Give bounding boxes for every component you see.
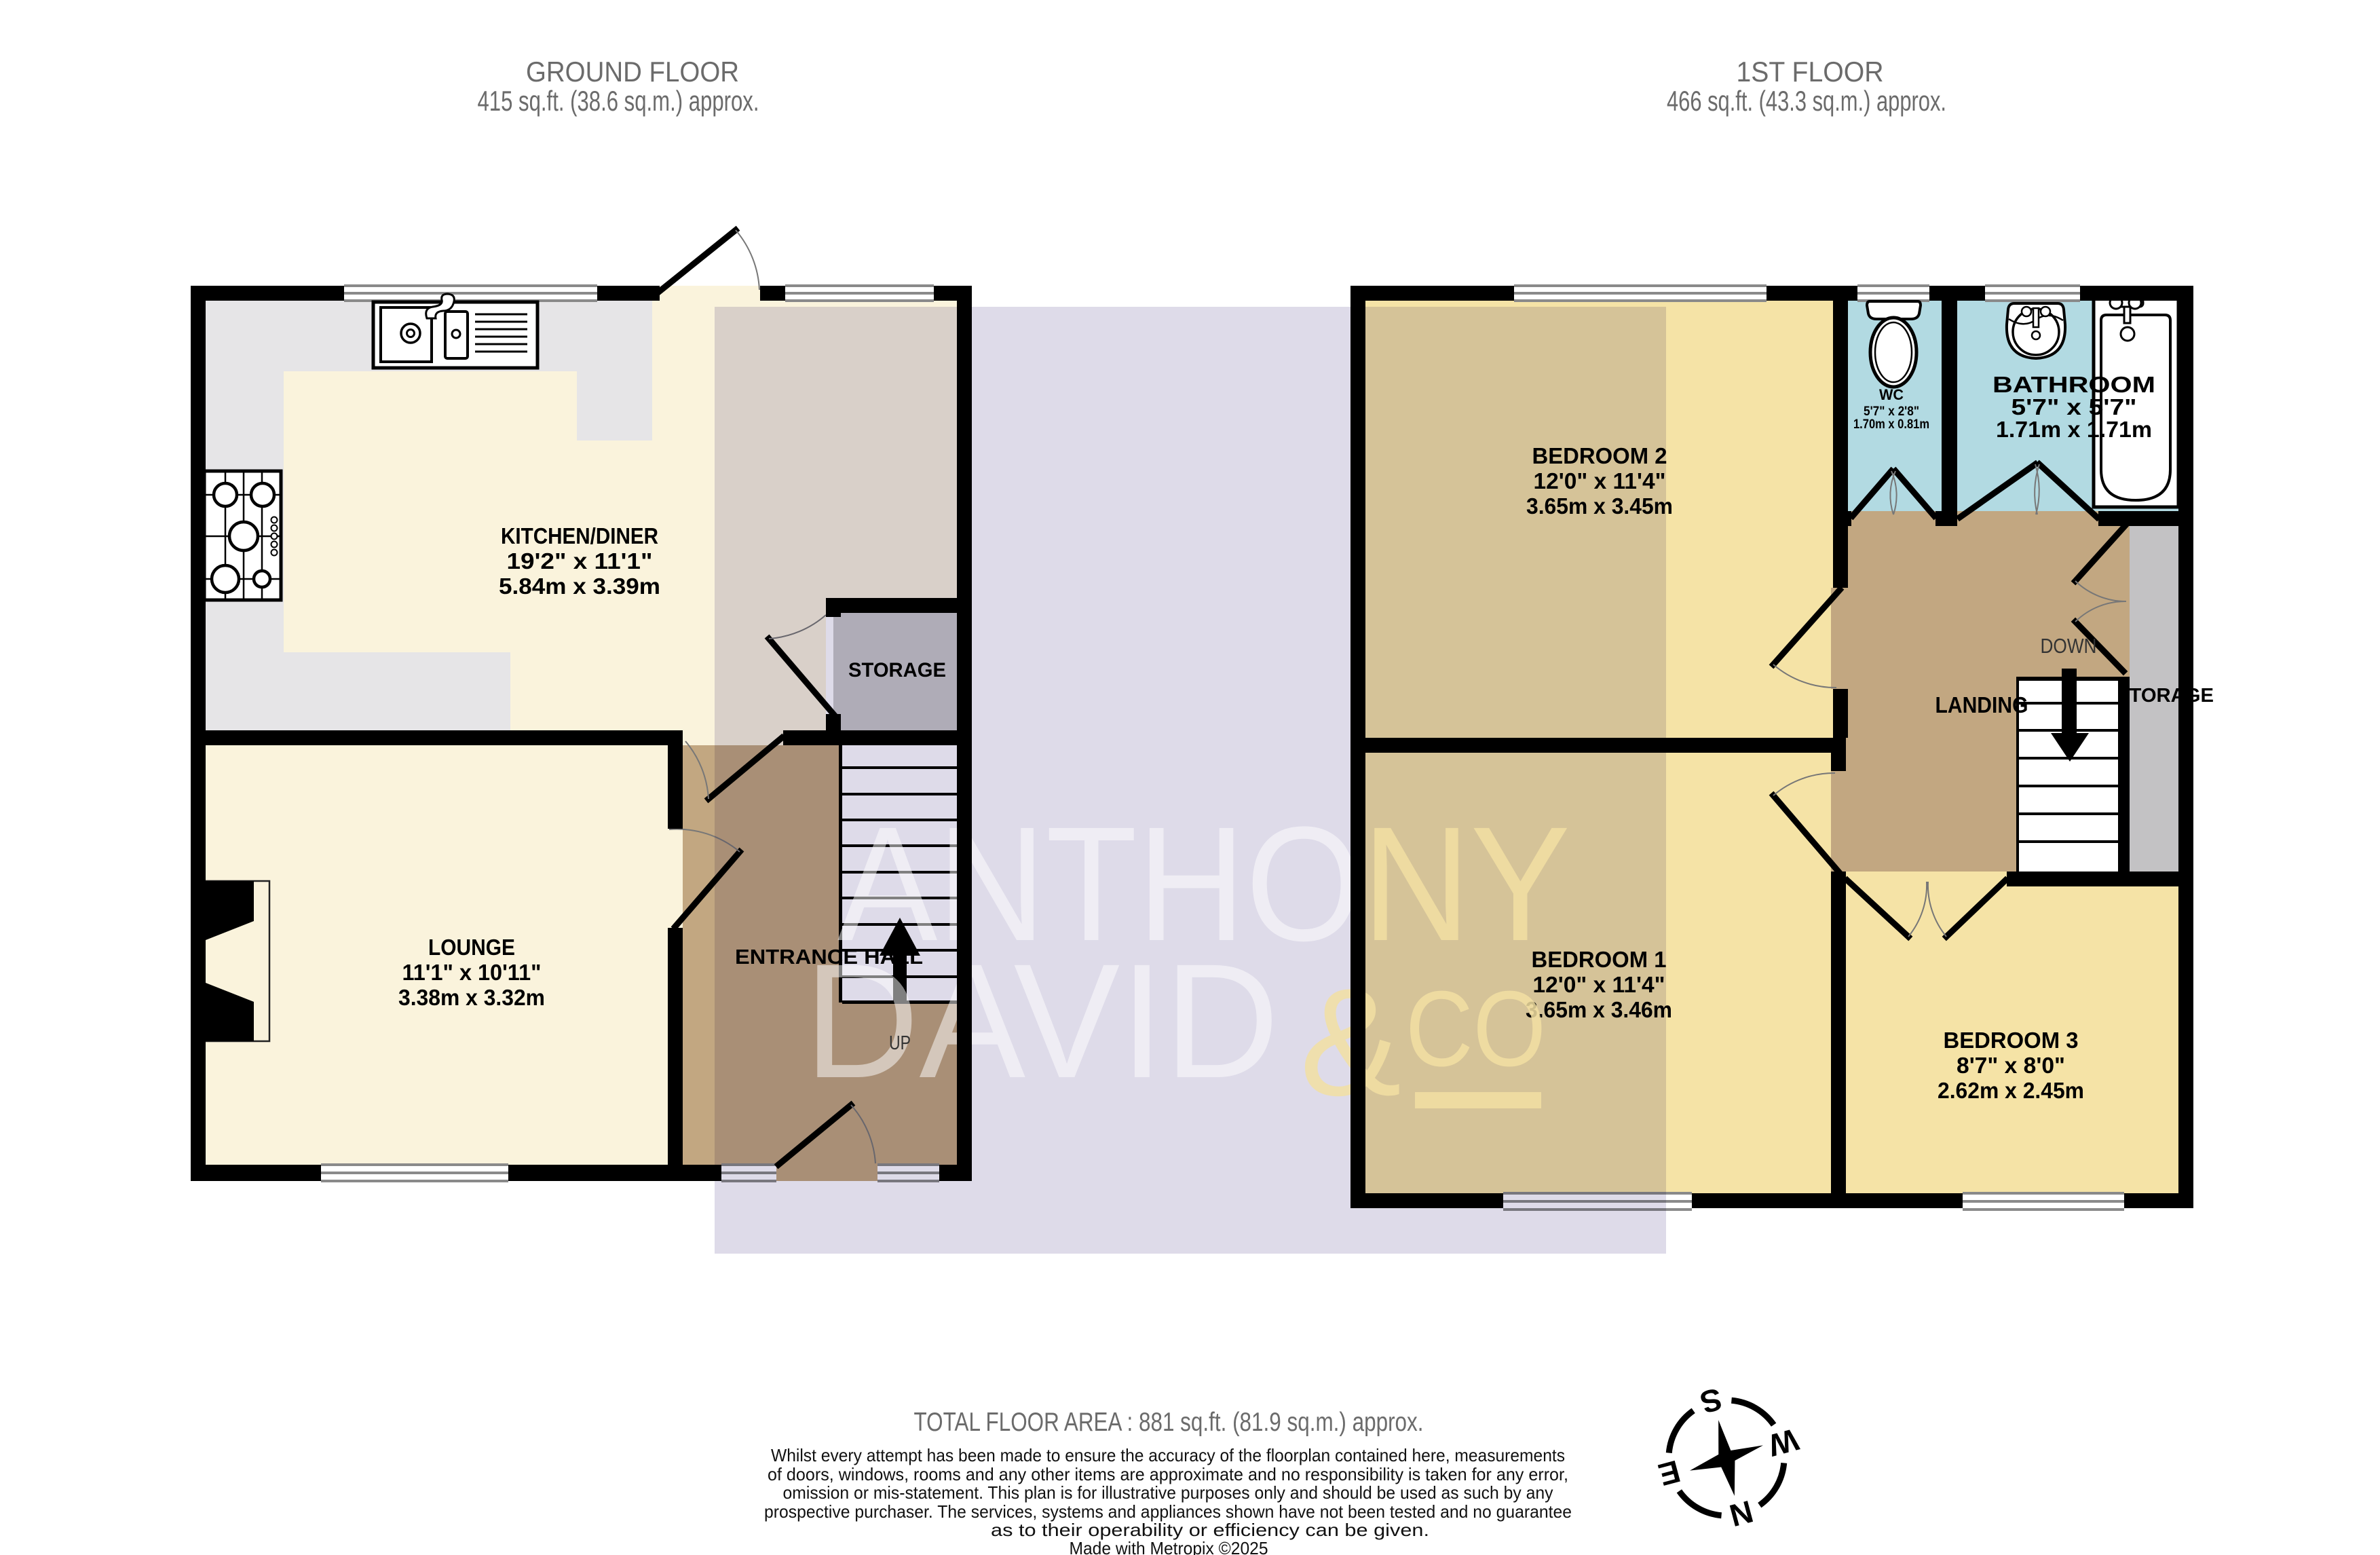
svg-text:11'1" x 10'11": 11'1" x 10'11" bbox=[402, 960, 542, 985]
svg-text:3.38m x 3.32m: 3.38m x 3.32m bbox=[398, 985, 545, 1010]
svg-text:BATHROOM: BATHROOM bbox=[1992, 372, 2155, 397]
svg-text:GROUND FLOOR: GROUND FLOOR bbox=[526, 56, 739, 88]
svg-text:2.62m x 2.45m: 2.62m x 2.45m bbox=[1938, 1078, 2084, 1103]
svg-text:8'7" x 8'0": 8'7" x 8'0" bbox=[1957, 1053, 2065, 1078]
svg-text:STORAGE: STORAGE bbox=[2116, 685, 2214, 707]
svg-text:of doors, windows, rooms and a: of doors, windows, rooms and any other i… bbox=[768, 1464, 1568, 1484]
svg-text:5'7" x 2'8": 5'7" x 2'8" bbox=[1864, 405, 1919, 419]
svg-text:CO: CO bbox=[1405, 969, 1546, 1089]
svg-text:Made with Metropix ©2025: Made with Metropix ©2025 bbox=[1070, 1538, 1268, 1555]
svg-text:Whilst every attempt has been: Whilst every attempt has been made to en… bbox=[771, 1445, 1565, 1465]
svg-text:UP: UP bbox=[889, 1032, 911, 1054]
svg-text:TOTAL FLOOR AREA : 881 sq.ft.: TOTAL FLOOR AREA : 881 sq.ft. (81.9 sq.m… bbox=[914, 1408, 1424, 1437]
svg-text:1ST FLOOR: 1ST FLOOR bbox=[1737, 56, 1884, 88]
svg-text:5'7" x 5'7": 5'7" x 5'7" bbox=[2011, 394, 2137, 419]
svg-text:1.70m x 0.81m: 1.70m x 0.81m bbox=[1853, 417, 1929, 432]
svg-text:prospective purchaser. The ser: prospective purchaser. The services, sys… bbox=[764, 1501, 1572, 1522]
svg-text:1.71m x 1.71m: 1.71m x 1.71m bbox=[1996, 417, 2152, 442]
svg-text:466 sq.ft. (43.3 sq.m.) approx: 466 sq.ft. (43.3 sq.m.) approx. bbox=[1667, 85, 1946, 117]
svg-text:DOWN: DOWN bbox=[2041, 634, 2097, 658]
svg-text:LANDING: LANDING bbox=[1935, 692, 2028, 717]
svg-text:as to their operability or eff: as to their operability or efficiency ca… bbox=[991, 1520, 1429, 1540]
svg-text:omission or mis-statement. Thi: omission or mis-statement. This plan is … bbox=[783, 1482, 1553, 1503]
svg-text:415 sq.ft. (38.6 sq.m.) approx: 415 sq.ft. (38.6 sq.m.) approx. bbox=[478, 85, 759, 117]
svg-text:19'2" x 11'1": 19'2" x 11'1" bbox=[507, 548, 653, 574]
svg-text:DAVID: DAVID bbox=[804, 930, 1279, 1112]
svg-text:KITCHEN/DINER: KITCHEN/DINER bbox=[501, 523, 658, 548]
svg-text:5.84m x 3.39m: 5.84m x 3.39m bbox=[499, 574, 660, 599]
svg-text:WC: WC bbox=[1879, 386, 1904, 403]
svg-text:LOUNGE: LOUNGE bbox=[428, 935, 515, 960]
svg-text:BEDROOM 3: BEDROOM 3 bbox=[1944, 1028, 2079, 1053]
